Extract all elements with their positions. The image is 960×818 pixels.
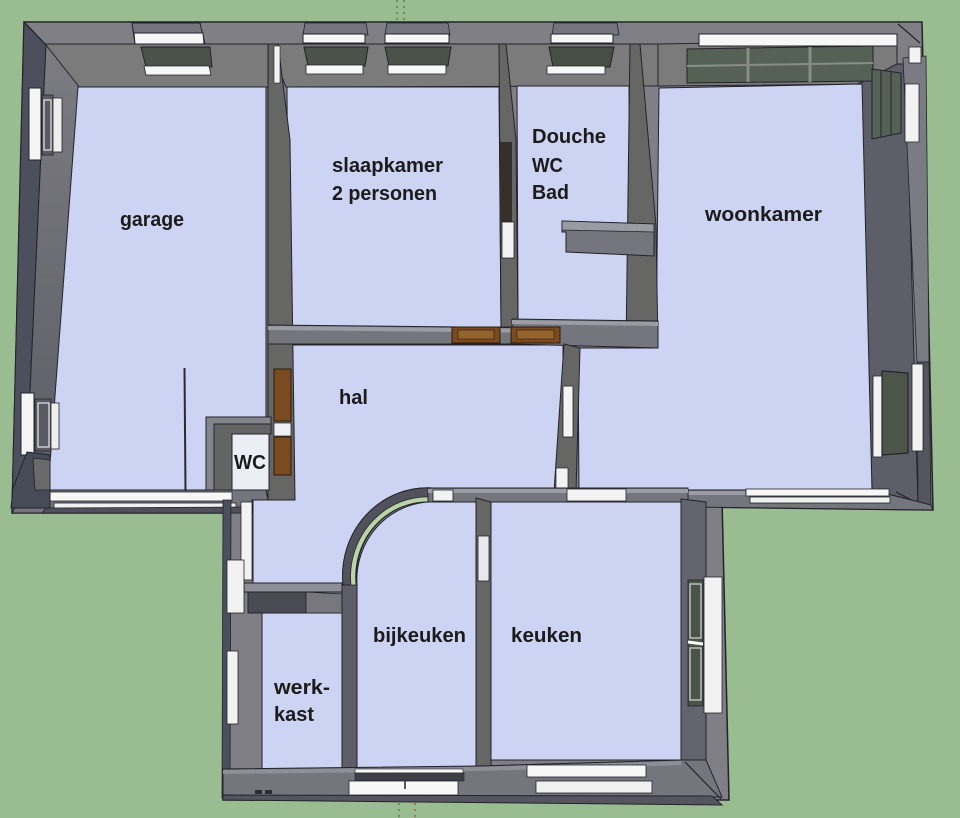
svg-text:WC: WC [234, 452, 266, 474]
svg-text:2 personen: 2 personen [332, 183, 437, 205]
svg-text:slaapkamer: slaapkamer [332, 155, 443, 177]
svg-text:WC: WC [532, 155, 563, 177]
svg-text:bijkeuken: bijkeuken [373, 625, 466, 647]
svg-text:werk-: werk- [273, 677, 330, 699]
svg-text:hal: hal [339, 387, 368, 409]
svg-text:Bad: Bad [532, 182, 569, 204]
svg-text:kast: kast [274, 704, 314, 726]
svg-text:keuken: keuken [511, 625, 582, 647]
svg-text:garage: garage [120, 209, 184, 231]
svg-text:Douche: Douche [532, 126, 606, 148]
svg-text:woonkamer: woonkamer [704, 204, 822, 226]
